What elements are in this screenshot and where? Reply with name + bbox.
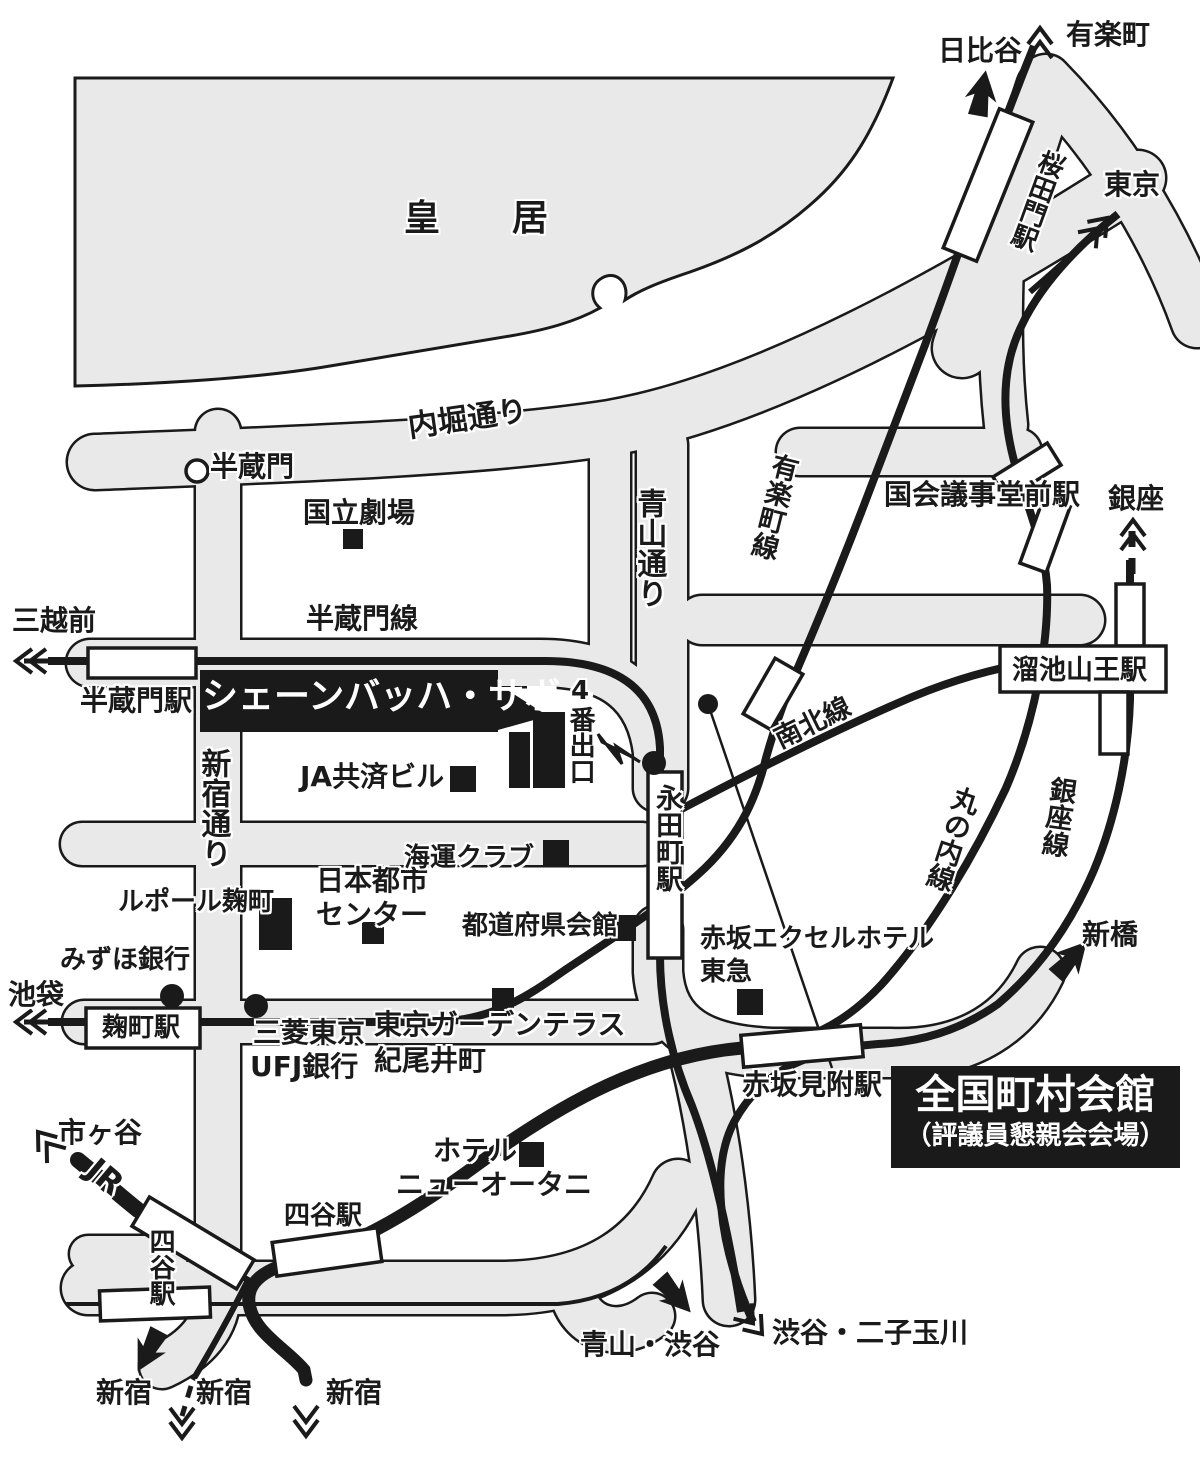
label-nihon-toshi-2: センター bbox=[316, 900, 428, 930]
label-shinjuku-dori: 新宿通り bbox=[196, 748, 228, 868]
label-nagatacho-station: 永田町駅 bbox=[652, 784, 681, 892]
label-hotel-2: ニューオータニ bbox=[396, 1170, 592, 1200]
label-akasaka-mitsuke-station: 赤坂見附駅 bbox=[742, 1070, 882, 1100]
label-ikebukuro: 池袋 bbox=[8, 980, 64, 1010]
label-akasaka-excel-1: 赤坂エクセルホテル bbox=[700, 925, 934, 953]
label-akasaka-excel-2: 東急 bbox=[700, 958, 752, 986]
label-shinjuku-right: 新宿 bbox=[326, 1378, 382, 1408]
label-yurakucho: 有楽町 bbox=[1066, 20, 1150, 50]
label-zenkoku-kaikan: 全国町村会館 bbox=[891, 1074, 1180, 1117]
label-aoyama-dori: 青山通り bbox=[632, 488, 664, 608]
label-ginza: 銀座 bbox=[1108, 484, 1164, 514]
label-hanzomon-gate: 半蔵門 bbox=[210, 452, 294, 482]
label-shinjuku-left: 新宿 bbox=[96, 1378, 152, 1408]
kokuritsu-gekijo-square bbox=[343, 529, 363, 549]
label-kokkaigijidomae-station: 国会議事堂前駅 bbox=[884, 480, 1080, 510]
label-ichigaya: 市ヶ谷 bbox=[58, 1118, 142, 1148]
label-yotsuya-station-jr: 四谷駅 bbox=[146, 1228, 174, 1306]
label-shibuya-futako: 渋谷・二子玉川 bbox=[772, 1318, 968, 1348]
label-mitsukoshimae: 三越前 bbox=[12, 606, 96, 636]
label-ufj-1: 三菱東京 bbox=[253, 1018, 365, 1048]
label-yotsuya-station-upper: 四谷駅 bbox=[284, 1202, 362, 1230]
kaiun-club-square bbox=[543, 840, 569, 866]
label-shimbashi: 新橋 bbox=[1082, 920, 1138, 950]
label-kokuritsu-gekijo: 国立劇場 bbox=[303, 498, 415, 528]
label-tameike-sanno-station: 溜池山王駅 bbox=[1012, 656, 1147, 685]
label-imperial-palace: 皇 居 bbox=[404, 200, 566, 239]
label-garden-terrace-1: 東京ガーデンテラス bbox=[374, 1010, 625, 1040]
hanzomon-gate-icon bbox=[186, 460, 208, 482]
label-todofuken-kaikan: 都道府県会館 bbox=[462, 912, 618, 940]
label-tokyo: 東京 bbox=[1104, 170, 1160, 200]
ufj-dot bbox=[244, 994, 268, 1018]
nanboku-line bbox=[670, 660, 1048, 815]
exit4-dot bbox=[642, 751, 666, 775]
label-zenkoku-note: （評議員懇親会会場） bbox=[891, 1122, 1180, 1150]
tameike-sanno-box-lower bbox=[1100, 692, 1128, 754]
venue-dot bbox=[698, 694, 718, 714]
label-exit4: 4番出口 bbox=[566, 676, 594, 784]
hanzomon-station-box bbox=[88, 648, 196, 678]
shinjuku-right-arrow-icon bbox=[294, 1406, 318, 1436]
access-map: 皇 居 半蔵門 内堀通り 国立劇場 日比谷 有楽町 東京 桜田門駅 銀座 国会議… bbox=[0, 0, 1200, 1469]
label-mizuho-bank: みずほ銀行 bbox=[60, 946, 190, 974]
mizuho-dot bbox=[160, 984, 184, 1008]
label-ufj-2: UFJ銀行 bbox=[250, 1052, 358, 1082]
akasaka-excel-square bbox=[737, 989, 763, 1015]
label-ja-kyosai: JA共済ビル bbox=[300, 762, 444, 792]
label-leport-kojimachi: ルポール麹町 bbox=[118, 888, 274, 916]
label-kojimachi-station: 麹町駅 bbox=[102, 1014, 180, 1042]
label-hanzomon-station: 半蔵門駅 bbox=[80, 686, 192, 716]
label-hanzomon-line: 半蔵門線 bbox=[306, 604, 418, 634]
label-aoyama-shibuya: 青山・渋谷 bbox=[580, 1330, 720, 1360]
label-kaiun-club: 海運クラブ bbox=[404, 844, 534, 872]
tameike-sanno-box-upper bbox=[1116, 584, 1144, 646]
label-garden-terrace-2: 紀尾井町 bbox=[374, 1046, 486, 1076]
hotel-new-otani-square bbox=[519, 1142, 544, 1167]
label-hibiya: 日比谷 bbox=[938, 36, 1022, 66]
venue-leader-line bbox=[708, 704, 832, 1068]
garden-terrace-square bbox=[492, 988, 514, 1010]
hibiya-arrow-icon bbox=[962, 68, 1002, 119]
label-hotel-1: ホテル bbox=[433, 1136, 517, 1166]
label-schoenbach-sabo: シェーンバッハ・サボー bbox=[202, 678, 496, 717]
ja-kyosai-square bbox=[450, 766, 476, 792]
label-shinjuku-mid: 新宿 bbox=[196, 1378, 252, 1408]
